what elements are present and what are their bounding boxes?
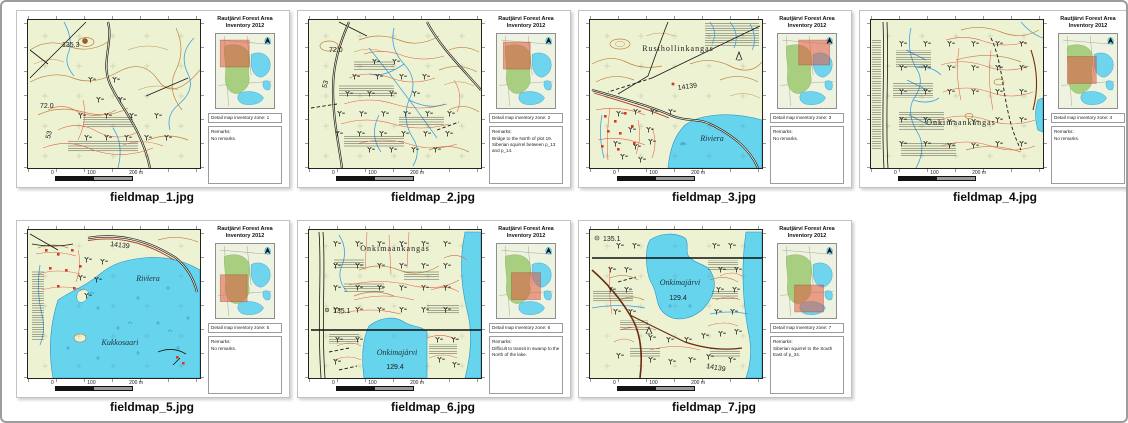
remarks-box: Remarks: Siberian squirrel to the South … [770, 336, 844, 394]
remarks-box: Remarks: Difficult to transit in swamp t… [489, 336, 563, 394]
scale-bar: 0100200 m [43, 380, 163, 391]
fieldmaps-gallery: 135.3 72.0 53 0100200 m Rautjärvi Forest… [0, 0, 1128, 423]
map3-lake-name-label: Riviera [699, 134, 724, 143]
map5-island-name-label: Kukkosaari [101, 338, 139, 347]
remarks-box: Remarks: Bridge to the North of plot 19.… [489, 126, 563, 184]
fieldmap-3-filename[interactable]: fieldmap_3.jpg [578, 190, 850, 204]
zone-highlight [220, 40, 249, 67]
map-area-4: Onkimaankangas [870, 19, 1044, 169]
fieldmap-6-thumbnail[interactable]: Onkimaankangas 135.1 Onkimajärvi 129.4 0… [297, 220, 571, 398]
scale-bar: 0100200 m [886, 170, 1006, 181]
zone-label: Detail map inventory zone: 1 [208, 113, 282, 124]
scale-bar: 0100200 m [605, 170, 725, 181]
scale-bar: 0100200 m [605, 380, 725, 391]
fieldmap-1-thumbnail[interactable]: 135.3 72.0 53 0100200 m Rautjärvi Forest… [16, 10, 290, 188]
zone-highlight [795, 285, 824, 312]
map6-lake-elevation-label: 129.4 [386, 364, 404, 371]
map-sheet-title: Rautjärvi Forest AreaInventory 2012 [769, 16, 845, 30]
map-area-7: 135.1 Onkimajärvi 129.4 14139 [589, 229, 763, 379]
fieldmap-6-filename[interactable]: fieldmap_6.jpg [297, 400, 569, 414]
scale-bar: 0100200 m [324, 380, 444, 391]
overview-map [215, 243, 275, 319]
fieldmap-5-thumbnail[interactable]: 14139 Riviera Kukkosaari 0100200 m Rautj… [16, 220, 290, 398]
map6-area-name-label: Onkimaankangas [360, 244, 430, 253]
overview-map [215, 33, 275, 109]
map5-lake-name-label: Riviera [135, 274, 160, 283]
map-area-2: 72.0 53 [308, 19, 482, 169]
fieldmap-4-thumbnail[interactable]: Onkimaankangas 0100200 m Rautjärvi Fores… [859, 10, 1128, 188]
overview-map [496, 33, 556, 109]
remarks-box: Remarks: No remarks. [208, 336, 282, 394]
map-preview-2: 72.0 53 [309, 20, 481, 168]
zone-highlight [1067, 56, 1096, 83]
map-area-6: Onkimaankangas 135.1 Onkimajärvi 129.4 [308, 229, 482, 379]
map-preview-3: Rusthollinkangas 14139 Riviera [590, 20, 762, 168]
fieldmap-2-thumbnail[interactable]: 72.0 53 0100200 m Rautjärvi Forest AreaI… [297, 10, 571, 188]
map-area-3: Rusthollinkangas 14139 Riviera [589, 19, 763, 169]
zone-label: Detail map inventory zone: 5 [208, 323, 282, 334]
zone-highlight [503, 42, 530, 69]
fieldmap-2-filename[interactable]: fieldmap_2.jpg [297, 190, 569, 204]
map-area-5: 14139 Riviera Kukkosaari [27, 229, 201, 379]
map-preview-4: Onkimaankangas [871, 20, 1043, 168]
map7-lake-elevation-label: 129.4 [669, 295, 687, 302]
map-sheet-title: Rautjärvi Forest AreaInventory 2012 [488, 16, 564, 30]
map-preview-7: 135.1 Onkimajärvi 129.4 14139 [590, 230, 762, 378]
map-preview-1: 135.3 72.0 53 [28, 20, 200, 168]
fieldmap-1-filename[interactable]: fieldmap_1.jpg [16, 190, 288, 204]
fieldmap-4-filename[interactable]: fieldmap_4.jpg [859, 190, 1128, 204]
zone-label: Detail map inventory zone: 6 [489, 323, 563, 334]
fieldmap-7-thumbnail[interactable]: 135.1 Onkimajärvi 129.4 14139 0100200 m … [578, 220, 852, 398]
zone-highlight [512, 273, 541, 300]
map-sheet-title: Rautjärvi Forest AreaInventory 2012 [769, 226, 845, 240]
zone-label: Detail map inventory zone: 7 [770, 323, 844, 334]
map4-area-name-label: Onkimaankangas [926, 118, 996, 127]
map7-lake-name-label: Onkimajärvi [660, 278, 700, 287]
map1-contour-label: 72.0 [40, 103, 54, 110]
zone-label: Detail map inventory zone: 4 [1051, 113, 1125, 124]
map-sheet-title: Rautjärvi Forest AreaInventory 2012 [488, 226, 564, 240]
map-sheet-title: Rautjärvi Forest AreaInventory 2012 [207, 16, 283, 30]
map1-spot-height-label: 135.3 [62, 42, 80, 49]
map2-contour-label: 72.0 [329, 47, 343, 54]
map3-area-name-label: Rusthollinkangas [642, 44, 714, 53]
zone-label: Detail map inventory zone: 3 [770, 113, 844, 124]
fieldmap-3-thumbnail[interactable]: Rusthollinkangas 14139 Riviera 0100200 m… [578, 10, 852, 188]
map7-spot-height-label: 135.1 [603, 236, 621, 243]
map6-lake-name-label: Onkimajärvi [377, 348, 417, 357]
map-preview-6: Onkimaankangas 135.1 Onkimajärvi 129.4 [309, 230, 481, 378]
overview-map [777, 243, 837, 319]
overview-map [496, 243, 556, 319]
zone-highlight [220, 275, 247, 302]
map6-spot-height-label: 135.1 [333, 308, 351, 315]
scale-bar: 0100200 m [324, 170, 444, 181]
overview-map [1058, 33, 1118, 109]
fieldmap-7-filename[interactable]: fieldmap_7.jpg [578, 400, 850, 414]
map-sheet-title: Rautjärvi Forest AreaInventory 2012 [207, 226, 283, 240]
zone-label: Detail map inventory zone: 2 [489, 113, 563, 124]
map-area-1: 135.3 72.0 53 [27, 19, 201, 169]
scale-bar: 0100200 m [43, 170, 163, 181]
zone-highlight [799, 40, 830, 65]
overview-map [777, 33, 837, 109]
remarks-box: Remarks: No remarks. [1051, 126, 1125, 184]
remarks-box: Remarks: No remarks. [770, 126, 844, 184]
map-preview-5: 14139 Riviera Kukkosaari [28, 230, 200, 378]
fieldmap-5-filename[interactable]: fieldmap_5.jpg [16, 400, 288, 414]
remarks-box: Remarks: No remarks. [208, 126, 282, 184]
map-sheet-title: Rautjärvi Forest AreaInventory 2012 [1050, 16, 1126, 30]
